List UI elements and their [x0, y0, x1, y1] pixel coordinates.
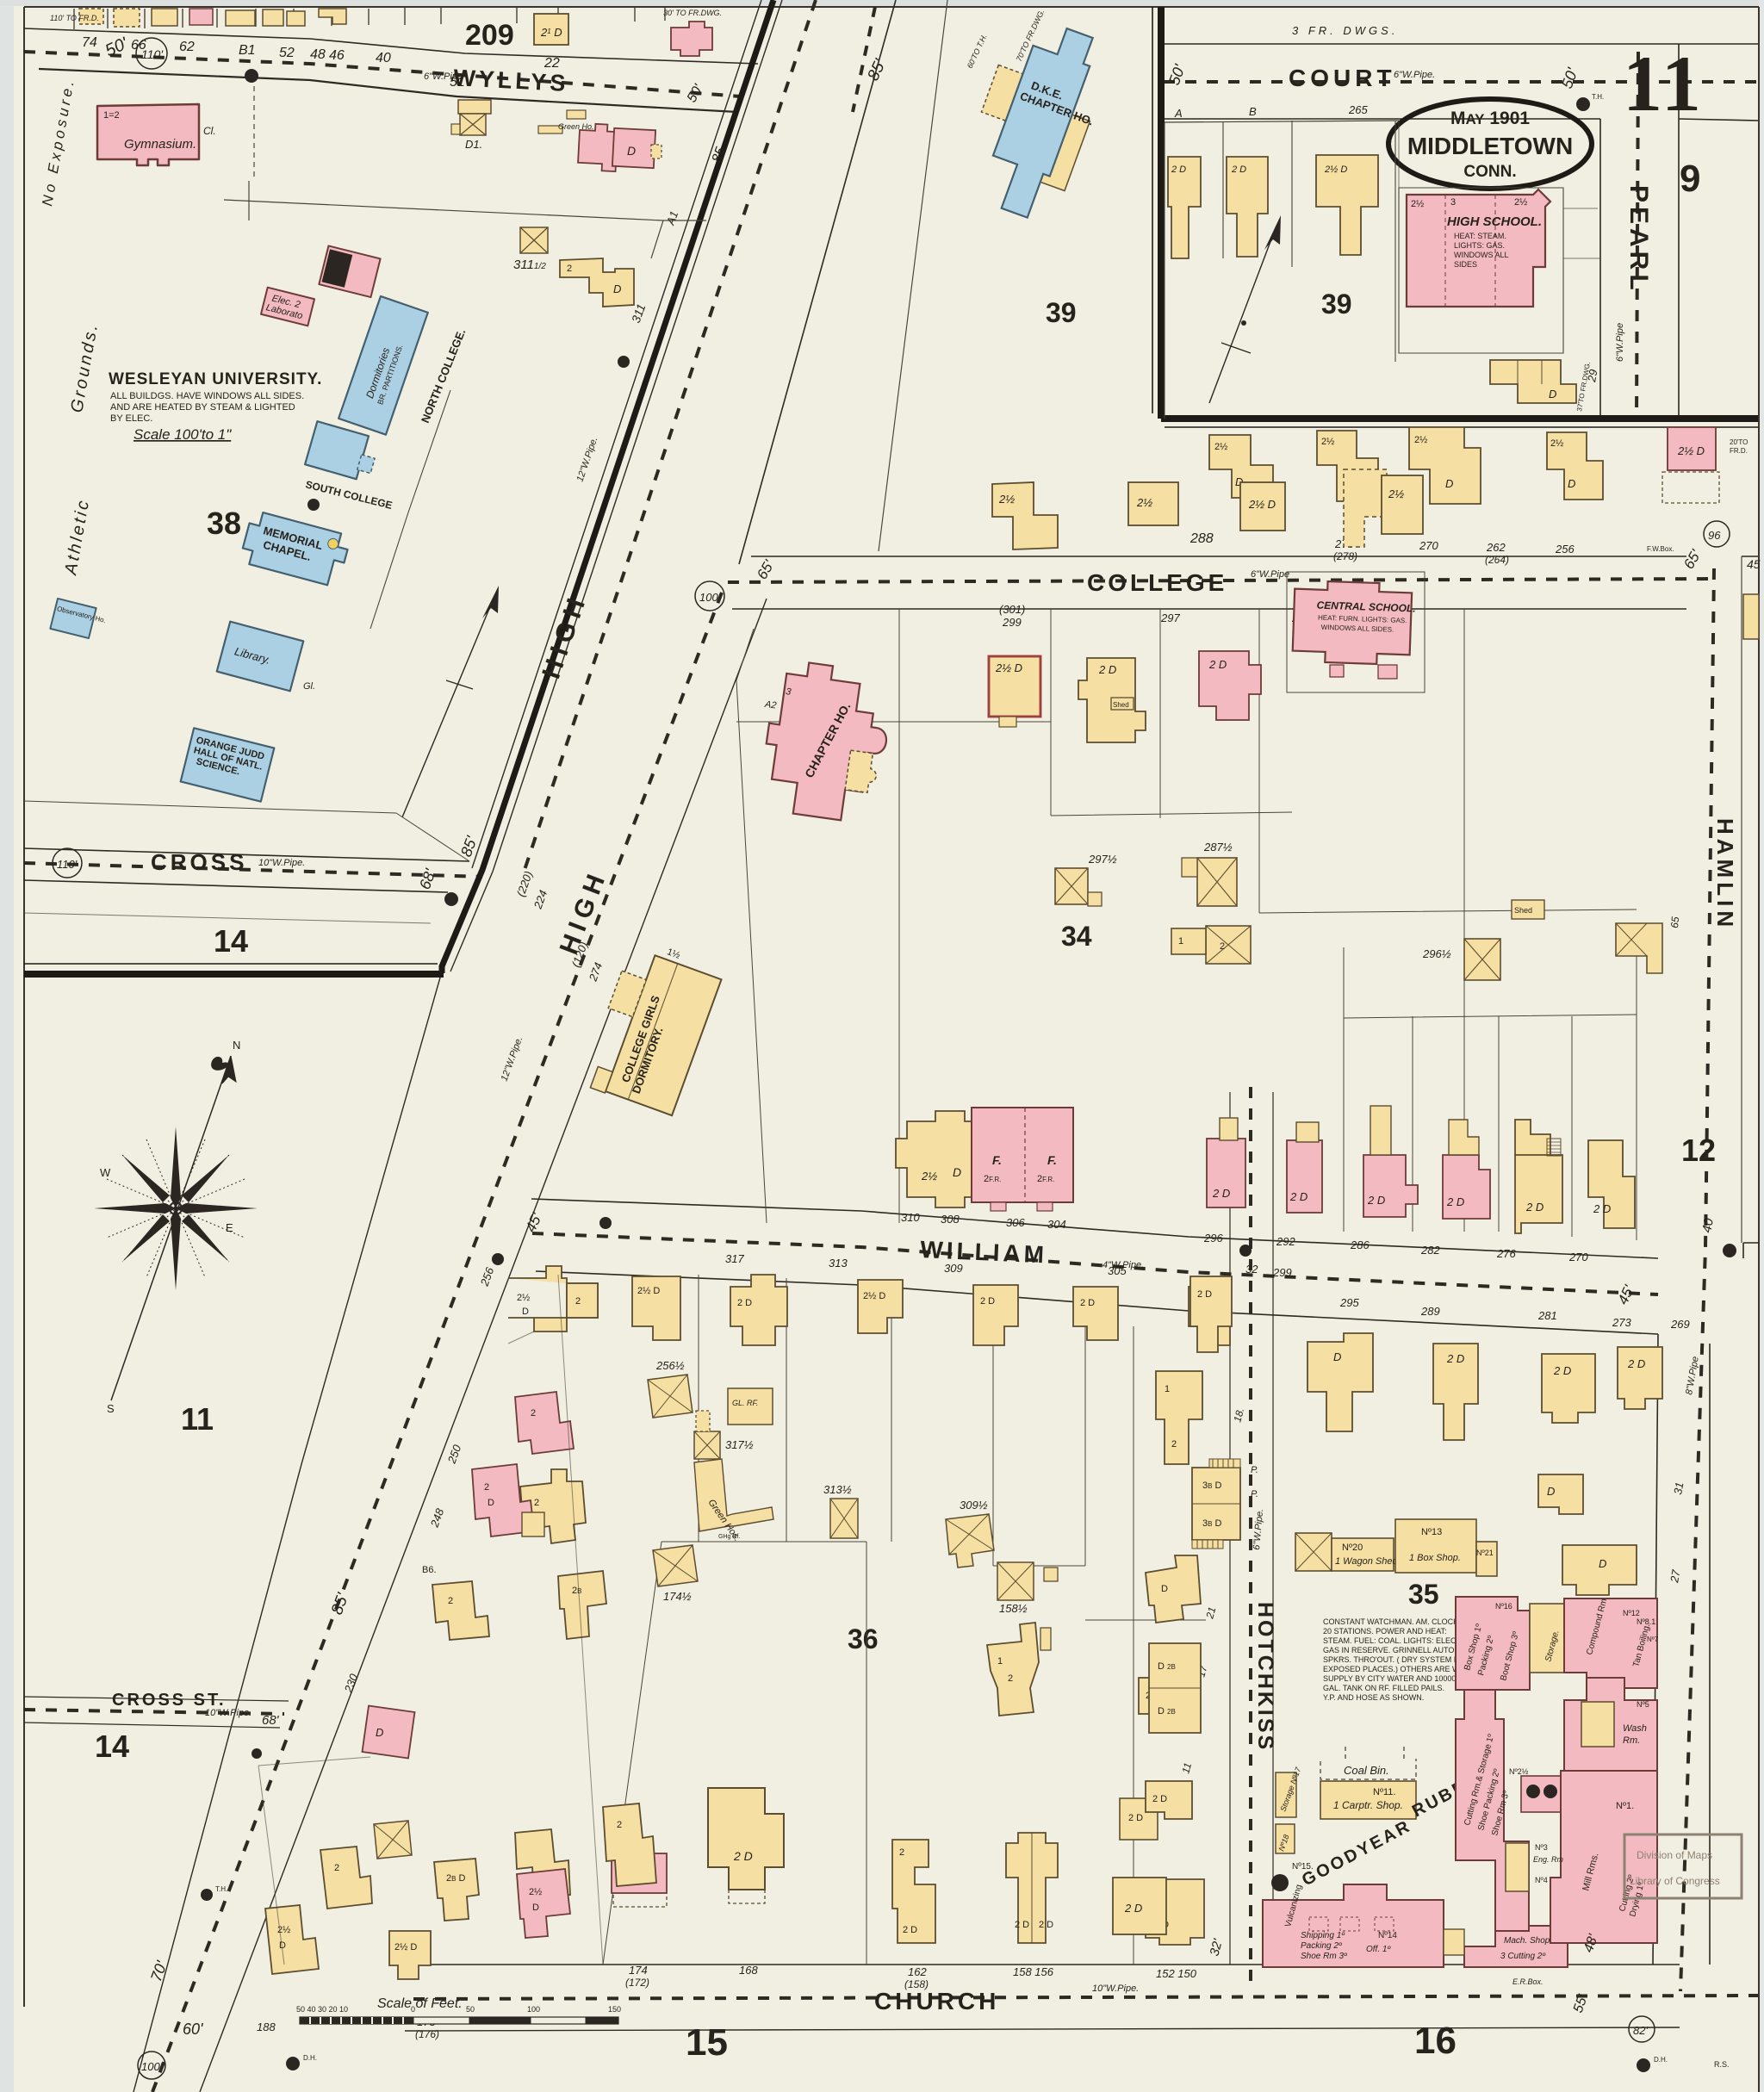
svg-text:D: D: [1547, 1485, 1555, 1498]
svg-text:68': 68': [262, 1713, 280, 1728]
svg-text:2: 2: [484, 1482, 489, 1493]
svg-text:(264): (264): [1485, 554, 1509, 566]
svg-text:COURT: COURT: [1289, 65, 1396, 91]
svg-text:COLLEGE: COLLEGE: [1087, 569, 1227, 596]
svg-text:2: 2: [334, 1863, 339, 1873]
svg-text:WINDOWS ALL: WINDOWS ALL: [1454, 251, 1509, 259]
svg-text:152 150: 152 150: [1156, 1967, 1197, 1980]
svg-text:HIGH SCHOOL.: HIGH SCHOOL.: [1447, 214, 1542, 229]
svg-text:F.W.Box.: F.W.Box.: [1647, 545, 1674, 553]
svg-text:1 Wagon Shed: 1 Wagon Shed: [1335, 1556, 1398, 1567]
svg-text:Packing 2º: Packing 2º: [1301, 1941, 1343, 1951]
svg-text:D: D: [376, 1726, 383, 1739]
svg-text:20 STATIONS. POWER AND HEAT:: 20 STATIONS. POWER AND HEAT:: [1323, 1627, 1447, 1636]
svg-text:2½: 2½: [1214, 442, 1227, 452]
svg-text:B: B: [1249, 105, 1257, 118]
svg-text:D 2B: D 2B: [1158, 1706, 1176, 1716]
svg-text:36: 36: [848, 1623, 879, 1654]
svg-text:Library of Congress: Library of Congress: [1630, 1875, 1720, 1887]
svg-text:Gymnasium.: Gymnasium.: [124, 137, 196, 152]
svg-text:D.H.: D.H.: [303, 2054, 317, 2062]
svg-text:10"W.Pipe.: 10"W.Pipe.: [258, 858, 305, 868]
svg-text:188: 188: [257, 2021, 276, 2033]
svg-text:2: 2: [899, 1847, 904, 1858]
svg-text:B6.: B6.: [422, 1565, 437, 1575]
svg-text:AND ARE HEATED BY STEAM & LIGH: AND ARE HEATED BY STEAM & LIGHTED: [110, 402, 295, 413]
svg-text:297: 297: [1160, 611, 1180, 624]
svg-text:1 Box Shop.: 1 Box Shop.: [1409, 1553, 1461, 1563]
svg-text:2½ D: 2½ D: [1248, 498, 1276, 511]
svg-text:50 40 30 20 10: 50 40 30 20 10: [296, 2005, 348, 2014]
svg-text:2F.R.: 2F.R.: [1037, 1174, 1054, 1184]
svg-text:2½: 2½: [1514, 197, 1527, 208]
svg-text:D: D: [488, 1498, 494, 1508]
svg-text:2 D: 2 D: [1171, 165, 1186, 175]
svg-text:39: 39: [1046, 297, 1077, 328]
svg-text:Coal Bin.: Coal Bin.: [1344, 1764, 1389, 1777]
svg-text:16: 16: [1414, 2020, 1457, 2062]
svg-text:2½: 2½: [1321, 437, 1334, 447]
svg-text:35: 35: [1408, 1579, 1439, 1610]
svg-text:65: 65: [1668, 916, 1681, 928]
svg-text:D: D: [532, 1903, 539, 1913]
svg-text:38: 38: [207, 506, 241, 541]
svg-text:100': 100': [141, 2060, 163, 2073]
svg-text:6"W.Pipe: 6"W.Pipe: [424, 71, 463, 82]
svg-text:100': 100': [699, 591, 721, 604]
svg-text:2 D: 2 D: [1553, 1364, 1571, 1377]
svg-text:Wash: Wash: [1623, 1723, 1647, 1734]
svg-text:LIGHTS: GAS.: LIGHTS: GAS.: [1454, 241, 1505, 250]
svg-text:Off. 1º: Off. 1º: [1366, 1945, 1391, 1954]
svg-text:2 D: 2 D: [1525, 1201, 1543, 1214]
svg-text:270: 270: [1419, 539, 1438, 552]
svg-text:1: 1: [1165, 1384, 1170, 1394]
svg-text:Nº3: Nº3: [1535, 1843, 1548, 1852]
svg-text:Nº2½: Nº2½: [1509, 1767, 1529, 1776]
svg-text:10"W.Pipe.: 10"W.Pipe.: [1092, 1983, 1139, 1994]
svg-text:D: D: [1599, 1557, 1606, 1570]
svg-text:2B: 2B: [572, 1586, 581, 1596]
svg-text:100: 100: [527, 2005, 540, 2014]
svg-text:STEAM. FUEL: COAL. LIGHTS: ELE: STEAM. FUEL: COAL. LIGHTS: ELEC.: [1323, 1636, 1458, 1645]
svg-text:309: 309: [944, 1262, 963, 1275]
svg-text:2 D: 2 D: [1080, 1298, 1095, 1308]
svg-text:D: D: [1568, 477, 1575, 490]
svg-text:HOTCHKISS: HOTCHKISS: [1253, 1602, 1277, 1752]
svg-text:2½ D: 2½ D: [995, 661, 1022, 674]
svg-text:D: D: [953, 1165, 961, 1179]
svg-text:2 D: 2 D: [1197, 1289, 1212, 1300]
svg-text:2F.R.: 2F.R.: [984, 1174, 1001, 1184]
svg-text:Nº13: Nº13: [1421, 1527, 1442, 1537]
svg-text:3B D: 3B D: [1202, 1518, 1222, 1529]
svg-text:Cl.: Cl.: [203, 125, 216, 137]
svg-text:317: 317: [725, 1252, 744, 1265]
svg-text:BY ELEC.: BY ELEC.: [110, 413, 152, 424]
svg-text:Nº12: Nº12: [1623, 1609, 1640, 1617]
svg-text:2 D: 2 D: [1446, 1352, 1464, 1365]
svg-text:309½: 309½: [960, 1499, 988, 1512]
svg-text:T.H.: T.H.: [215, 1885, 227, 1893]
svg-text:A: A: [1174, 107, 1183, 120]
svg-text:317½: 317½: [725, 1438, 754, 1451]
svg-text:Shed: Shed: [1113, 701, 1129, 709]
svg-text:2 D: 2 D: [1367, 1194, 1385, 1207]
svg-text:Y.P. AND HOSE AS SHOWN.: Y.P. AND HOSE AS SHOWN.: [1323, 1693, 1424, 1702]
svg-text:E.R.Box.: E.R.Box.: [1512, 1977, 1543, 1986]
svg-text:Nº4: Nº4: [1535, 1876, 1548, 1884]
svg-text:310: 310: [901, 1211, 920, 1224]
svg-text:MIDDLETOWN: MIDDLETOWN: [1407, 133, 1573, 159]
svg-text:74: 74: [82, 35, 97, 50]
svg-text:1: 1: [1178, 936, 1183, 947]
svg-text:174: 174: [629, 1964, 648, 1977]
svg-text:WESLEYAN UNIVERSITY.: WESLEYAN UNIVERSITY.: [109, 370, 322, 388]
svg-text:GL. RF.: GL. RF.: [732, 1399, 758, 1407]
svg-text:D: D: [522, 1307, 529, 1317]
svg-text:Scale 100'to 1": Scale 100'to 1": [134, 426, 232, 443]
svg-text:Green Ho.: Green Ho.: [558, 122, 594, 131]
svg-text:20'TO: 20'TO: [1730, 438, 1748, 446]
svg-text:2 D: 2 D: [980, 1296, 995, 1307]
svg-text:21 D: 21 D: [540, 26, 562, 39]
svg-text:2½: 2½: [1136, 496, 1152, 509]
svg-text:12: 12: [1681, 1133, 1716, 1168]
svg-text:168: 168: [739, 1964, 758, 1977]
svg-text:256½: 256½: [655, 1359, 685, 1372]
svg-text:2: 2: [617, 1820, 622, 1830]
svg-text:SIDES: SIDES: [1454, 260, 1477, 269]
svg-text:287½: 287½: [1203, 841, 1233, 854]
svg-text:2 D: 2 D: [1128, 1813, 1143, 1823]
svg-text:CROSS ST.: CROSS ST.: [112, 1691, 227, 1710]
svg-text:D: D: [1445, 477, 1453, 490]
svg-text:30' TO FR.DWG.: 30' TO FR.DWG.: [663, 9, 722, 17]
svg-text:62: 62: [179, 40, 195, 54]
svg-text:52: 52: [279, 46, 295, 60]
svg-text:2½: 2½: [517, 1293, 530, 1303]
svg-text:282: 282: [1420, 1244, 1440, 1257]
svg-text:46: 46: [329, 48, 345, 63]
svg-text:2 D: 2 D: [1289, 1190, 1307, 1203]
svg-text:2 D: 2 D: [733, 1849, 753, 1863]
svg-text:2: 2: [575, 1296, 581, 1307]
svg-text:11: 11: [181, 1401, 214, 1437]
svg-text:2½ D: 2½ D: [863, 1291, 885, 1301]
svg-text:HAMLIN: HAMLIN: [1712, 818, 1738, 931]
svg-text:3 FR. DWGS.: 3 FR. DWGS.: [1292, 24, 1398, 37]
svg-text:2 D: 2 D: [1015, 1920, 1029, 1930]
svg-text:Gl.: Gl.: [303, 681, 315, 692]
svg-text:D: D: [613, 282, 621, 295]
svg-text:HEAT: STEAM.: HEAT: STEAM.: [1454, 232, 1506, 240]
svg-text:110': 110': [57, 858, 78, 871]
svg-text:14: 14: [214, 923, 248, 959]
svg-text:209: 209: [465, 19, 514, 52]
svg-text:158½: 158½: [999, 1602, 1028, 1615]
svg-text:299: 299: [1272, 1266, 1292, 1279]
svg-text:288: 288: [1189, 531, 1214, 546]
svg-text:3: 3: [1450, 197, 1456, 208]
svg-text:296½: 296½: [1422, 947, 1451, 960]
svg-text:MAY 1901: MAY 1901: [1450, 109, 1530, 128]
svg-text:CONN.: CONN.: [1463, 163, 1516, 181]
svg-text:Nº20: Nº20: [1342, 1543, 1363, 1553]
svg-text:296: 296: [1203, 1232, 1223, 1245]
svg-text:D: D: [1333, 1350, 1341, 1363]
svg-text:2: 2: [567, 264, 572, 274]
svg-text:D 2B: D 2B: [1158, 1661, 1176, 1672]
svg-text:3 Cutting 2º: 3 Cutting 2º: [1500, 1952, 1546, 1961]
svg-text:2 D: 2 D: [1098, 663, 1116, 676]
svg-text:276: 276: [1496, 1247, 1516, 1260]
svg-text:Eng. Rm: Eng. Rm: [1533, 1855, 1564, 1864]
svg-text:Nº7: Nº7: [1647, 1636, 1659, 1643]
svg-text:10"W.Pipe.: 10"W.Pipe.: [205, 1708, 252, 1718]
svg-text:2B D: 2B D: [446, 1873, 466, 1884]
svg-text:2 D: 2 D: [903, 1925, 917, 1935]
svg-text:2 D: 2 D: [1627, 1357, 1645, 1370]
svg-text:40: 40: [376, 51, 391, 65]
svg-text:2: 2: [1171, 1439, 1177, 1450]
svg-text:N: N: [233, 1039, 240, 1052]
svg-text:286: 286: [1350, 1238, 1370, 1251]
svg-text:ALL BUILDGS. HAVE WINDOWS ALL: ALL BUILDGS. HAVE WINDOWS ALL SIDES.: [110, 391, 304, 401]
svg-text:304: 304: [1047, 1218, 1066, 1231]
svg-text:2½ D: 2½ D: [1677, 444, 1705, 457]
svg-text:Nº15.: Nº15.: [1292, 1862, 1314, 1872]
svg-text:GAS IN RESERVE. GRINNELL AUTO.: GAS IN RESERVE. GRINNELL AUTO.: [1323, 1646, 1457, 1654]
svg-text:2½: 2½: [1411, 199, 1424, 209]
svg-text:B1: B1: [239, 43, 256, 58]
svg-text:2: 2: [534, 1498, 539, 1508]
svg-text:SUPPLY BY CITY WATER AND 10000: SUPPLY BY CITY WATER AND 10000: [1323, 1674, 1456, 1683]
svg-text:22: 22: [543, 56, 560, 71]
svg-text:Division of Maps: Division of Maps: [1637, 1849, 1712, 1861]
svg-text:60': 60': [183, 2021, 203, 2038]
svg-text:292: 292: [1276, 1235, 1295, 1248]
svg-text:CROSS: CROSS: [151, 849, 247, 875]
svg-text:289: 289: [1420, 1305, 1440, 1318]
svg-text:313½: 313½: [823, 1483, 852, 1496]
svg-text:110': 110': [141, 47, 164, 61]
svg-text:2 D: 2 D: [1446, 1195, 1464, 1208]
svg-text:2: 2: [1008, 1673, 1013, 1684]
svg-text:2: 2: [1220, 941, 1225, 952]
svg-text:2½ D: 2½ D: [394, 1942, 417, 1952]
svg-text:P.: P.: [1251, 1489, 1258, 1499]
svg-text:2 D: 2 D: [1231, 165, 1246, 175]
svg-text:D1.: D1.: [465, 138, 482, 151]
svg-text:269: 269: [1670, 1318, 1690, 1331]
svg-text:D: D: [1549, 388, 1556, 400]
svg-text:PEARL: PEARL: [1624, 185, 1653, 295]
svg-text:CHURCH: CHURCH: [874, 1988, 999, 2014]
svg-text:45: 45: [1747, 557, 1761, 571]
svg-text:SPKRS. THRO'OUT. ( DRY SYSTEM: SPKRS. THRO'OUT. ( DRY SYSTEM IN: [1323, 1655, 1462, 1664]
svg-text:281: 281: [1537, 1309, 1557, 1322]
svg-text:Nº14: Nº14: [1378, 1931, 1397, 1940]
svg-text:2 D: 2 D: [1039, 1920, 1053, 1930]
svg-text:F.: F.: [1047, 1153, 1057, 1167]
svg-text:174½: 174½: [663, 1590, 692, 1603]
svg-text:FR.D.: FR.D.: [1730, 447, 1748, 455]
svg-text:D.H.: D.H.: [1654, 2056, 1668, 2064]
svg-text:6"W.Pipe.: 6"W.Pipe.: [1394, 70, 1435, 80]
svg-text:EXPOSED PLACES.) OTHERS ARE WE: EXPOSED PLACES.) OTHERS ARE WET.: [1323, 1665, 1471, 1673]
svg-text:2 D: 2 D: [1208, 658, 1227, 671]
svg-text:2½: 2½: [1388, 487, 1404, 500]
svg-text:313: 313: [829, 1257, 848, 1269]
svg-text:3B D: 3B D: [1202, 1481, 1222, 1491]
svg-text:6"W.Pipe: 6"W.Pipe: [1251, 569, 1289, 580]
svg-text:(172): (172): [625, 1977, 649, 1989]
svg-text:D: D: [1161, 1584, 1168, 1594]
svg-text:2½ D: 2½ D: [1324, 165, 1347, 175]
svg-text:R.S.: R.S.: [1714, 2060, 1730, 2069]
svg-text:2: 2: [531, 1408, 536, 1418]
svg-text:0: 0: [411, 2005, 415, 2014]
svg-text:Scale of Feet.: Scale of Feet.: [377, 1996, 463, 2011]
svg-text:2 D: 2 D: [737, 1298, 752, 1308]
svg-text:GAL. TANK ON RF. FILLED PAILS.: GAL. TANK ON RF. FILLED PAILS.: [1323, 1684, 1444, 1692]
svg-text:Shoe Rm 3º: Shoe Rm 3º: [1301, 1952, 1348, 1961]
svg-text:110' TO FR.D.: 110' TO FR.D.: [50, 14, 99, 22]
svg-text:Nº5: Nº5: [1637, 1700, 1649, 1709]
svg-text:2½: 2½: [529, 1887, 542, 1897]
svg-text:W: W: [100, 1166, 111, 1179]
svg-text:2 D: 2 D: [1212, 1187, 1230, 1200]
svg-text:Nº11.: Nº11.: [1373, 1787, 1395, 1797]
svg-text:Nº21: Nº21: [1476, 1549, 1494, 1557]
svg-text:305: 305: [1108, 1264, 1127, 1277]
svg-text:32: 32: [1245, 1263, 1258, 1276]
svg-text:(301): (301): [999, 603, 1025, 616]
svg-text:306: 306: [1006, 1216, 1025, 1229]
svg-text:82': 82': [1633, 2024, 1648, 2037]
svg-text:15: 15: [686, 2021, 728, 2064]
svg-text:A2: A2: [763, 699, 777, 711]
svg-text:T.H.: T.H.: [1592, 93, 1604, 101]
svg-text:96: 96: [1708, 529, 1721, 542]
svg-text:256: 256: [1555, 543, 1575, 556]
svg-text:158 156: 158 156: [1013, 1965, 1054, 1978]
svg-text:150: 150: [608, 2005, 621, 2014]
svg-text:9: 9: [1680, 158, 1700, 200]
svg-text:308: 308: [941, 1213, 960, 1226]
svg-text:270: 270: [1568, 1251, 1588, 1263]
svg-text:162: 162: [908, 1965, 927, 1978]
svg-text:6"W.Pipe: 6"W.Pipe: [1615, 323, 1625, 362]
svg-text:1: 1: [997, 1656, 1003, 1667]
svg-text:2½ D: 2½ D: [637, 1286, 660, 1296]
svg-text:273: 273: [1612, 1316, 1631, 1329]
svg-text:F.: F.: [992, 1153, 1002, 1167]
svg-text:S: S: [107, 1402, 115, 1415]
svg-text:48: 48: [310, 47, 326, 62]
svg-text:2½: 2½: [921, 1170, 937, 1183]
svg-text:Mach. Shop: Mach. Shop: [1504, 1936, 1550, 1946]
svg-text:14: 14: [95, 1729, 129, 1764]
svg-text:D: D: [627, 144, 636, 158]
svg-text:E: E: [226, 1221, 233, 1234]
svg-text:2½: 2½: [1414, 435, 1427, 445]
svg-text:299: 299: [1002, 616, 1022, 629]
svg-text:(278): (278): [1333, 550, 1357, 562]
svg-text:11: 11: [1623, 40, 1705, 127]
svg-text:2½: 2½: [1550, 438, 1563, 449]
svg-text:WILLIAM: WILLIAM: [920, 1236, 1048, 1268]
svg-text:2½: 2½: [998, 493, 1015, 506]
svg-text:2 D: 2 D: [1152, 1794, 1167, 1804]
svg-text:265: 265: [1348, 103, 1368, 116]
svg-text:50: 50: [466, 2005, 475, 2014]
svg-text:GHg Rf.: GHg Rf.: [718, 1534, 740, 1540]
svg-text:262: 262: [1486, 541, 1506, 554]
svg-text:1=2: 1=2: [103, 110, 120, 121]
svg-text:2 D: 2 D: [1593, 1202, 1611, 1215]
svg-text:2 D: 2 D: [1124, 1902, 1142, 1915]
svg-text:Nº16: Nº16: [1495, 1602, 1512, 1611]
svg-text:39: 39: [1321, 289, 1352, 320]
svg-text:(176): (176): [415, 2028, 439, 2040]
svg-text:1 Carptr. Shop.: 1 Carptr. Shop.: [1333, 1799, 1403, 1811]
svg-text:2: 2: [448, 1596, 453, 1606]
svg-text:P.: P.: [1251, 1465, 1258, 1475]
svg-text:CONSTANT WATCHMAN. AM. CLOCK.: CONSTANT WATCHMAN. AM. CLOCK.: [1323, 1617, 1461, 1626]
svg-text:295: 295: [1339, 1296, 1359, 1309]
svg-text:Nº1.: Nº1.: [1616, 1801, 1634, 1811]
svg-text:Shed: Shed: [1514, 906, 1532, 915]
svg-text:297½: 297½: [1088, 853, 1117, 866]
svg-text:(158): (158): [904, 1978, 929, 1990]
svg-text:Rm.: Rm.: [1623, 1735, 1640, 1746]
svg-text:34: 34: [1061, 921, 1092, 952]
svg-text:Shipping 1º: Shipping 1º: [1301, 1931, 1345, 1940]
